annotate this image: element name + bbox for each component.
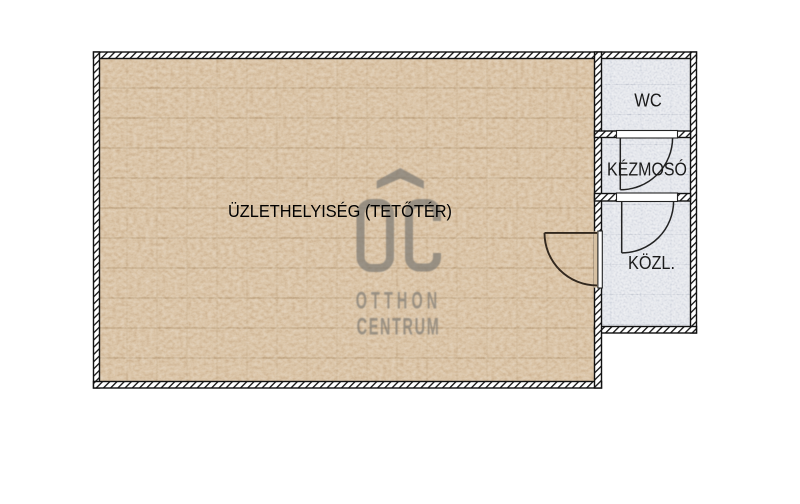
svg-text:KÖZL.: KÖZL. bbox=[628, 253, 675, 273]
svg-text:CENTRUM: CENTRUM bbox=[357, 314, 441, 341]
svg-text:WC: WC bbox=[634, 91, 662, 111]
svg-text:KÉZMOSÓ: KÉZMOSÓ bbox=[607, 159, 687, 180]
svg-text:OTTHON: OTTHON bbox=[356, 288, 442, 315]
svg-text:ÜZLETHELYISÉG (TETŐTÉR): ÜZLETHELYISÉG (TETŐTÉR) bbox=[228, 201, 452, 221]
